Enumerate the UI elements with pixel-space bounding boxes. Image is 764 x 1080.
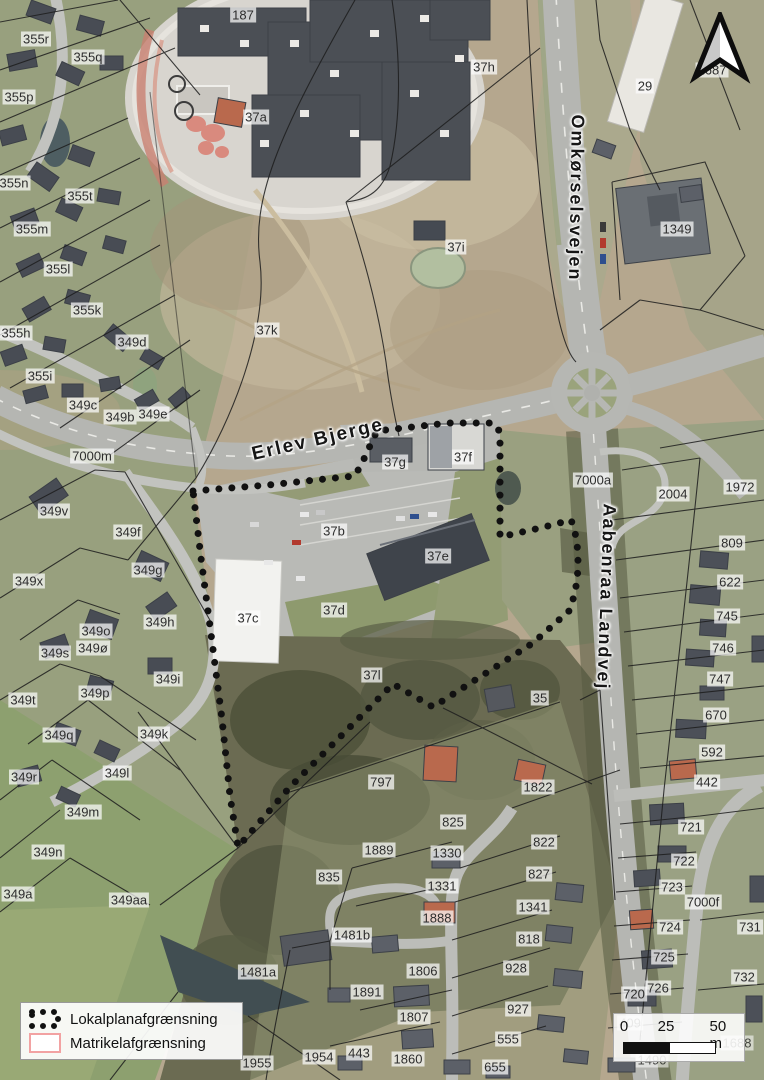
parcel-label: 443 xyxy=(346,1046,372,1061)
parcel-label: 1891 xyxy=(351,985,384,1000)
parcel-label: 592 xyxy=(699,745,725,760)
parcel-label: 349k xyxy=(138,727,170,742)
parcel-label: 7000a xyxy=(573,473,613,488)
parcel-label: 355m xyxy=(14,222,51,237)
parcel-label: 655 xyxy=(482,1060,508,1075)
parcel-label: 355l xyxy=(44,262,73,277)
parcel-label: 349p xyxy=(79,686,112,701)
parcel-label: 349t xyxy=(8,693,37,708)
parcel-label: 725 xyxy=(651,950,677,965)
parcel-label: 721 xyxy=(678,820,704,835)
parcel-label: 1806 xyxy=(407,964,440,979)
parcel-label: 349s xyxy=(39,646,71,661)
parcel-label: 355p xyxy=(3,90,36,105)
parcel-label: 1341 xyxy=(517,900,550,915)
parcel-label: 349h xyxy=(144,615,177,630)
parcel-label: 29 xyxy=(636,79,654,94)
parcel-label: 809 xyxy=(719,536,745,551)
parcel-label: 37d xyxy=(321,603,347,618)
parcel-label: 349l xyxy=(103,766,132,781)
parcel-label: 37g xyxy=(382,455,408,470)
parcel-label: 349aa xyxy=(109,893,149,908)
parcel-label: 349g xyxy=(132,563,165,578)
legend-item-lokalplan: Lokalplanafgrænsning xyxy=(27,1007,236,1031)
parcel-label: 349b xyxy=(104,410,137,425)
parcel-label: 37i xyxy=(445,240,466,255)
parcel-label: 7000f xyxy=(685,895,722,910)
map-canvas: 187355r355q355p37a37h291687355n355t355m1… xyxy=(0,0,764,1080)
scale-bar-white-segment xyxy=(670,1043,716,1053)
parcel-label: 1331 xyxy=(426,879,459,894)
parcel-label: 349d xyxy=(116,335,149,350)
dotted-boundary-icon xyxy=(27,1007,63,1031)
north-arrow-icon xyxy=(688,12,752,88)
parcel-label: 622 xyxy=(717,575,743,590)
parcel-label: 732 xyxy=(731,970,757,985)
parcel-label: 1349 xyxy=(661,222,694,237)
parcel-label: 7000m xyxy=(70,449,114,464)
parcel-label: 928 xyxy=(503,961,529,976)
parcel-label: 2004 xyxy=(657,487,690,502)
parcel-label: 720 xyxy=(621,987,647,1002)
parcel-label: 1888 xyxy=(421,911,454,926)
parcel-label: 1822 xyxy=(522,780,555,795)
parcel-label: 37h xyxy=(471,60,497,75)
scale-bar-black-segment xyxy=(624,1043,670,1053)
parcel-label: 670 xyxy=(703,708,729,723)
parcel-label: 349o xyxy=(80,624,113,639)
parcel-label: 731 xyxy=(737,920,763,935)
parcel-label: 723 xyxy=(659,880,685,895)
parcel-label: 835 xyxy=(316,870,342,885)
parcel-label: 349c xyxy=(67,398,99,413)
legend: Lokalplanafgrænsning Matrikelafgrænsning xyxy=(20,1002,243,1060)
parcel-label: 825 xyxy=(440,815,466,830)
parcel-label: 37l xyxy=(361,668,382,683)
parcel-label: 349f xyxy=(113,525,142,540)
parcel-label: 187 xyxy=(230,8,256,23)
parcel-label: 1954 xyxy=(303,1050,336,1065)
parcel-label: 355k xyxy=(71,303,103,318)
parcel-label: 747 xyxy=(707,672,733,687)
parcel-label: 37c xyxy=(236,611,261,626)
parcel-label: 722 xyxy=(671,854,697,869)
parcel-label: 355i xyxy=(26,369,55,384)
parcel-label: 1889 xyxy=(363,843,396,858)
scale-bar-graphic xyxy=(623,1042,716,1054)
legend-item-matrikel: Matrikelafgrænsning xyxy=(27,1031,236,1055)
parcel-label: 349e xyxy=(137,407,170,422)
parcel-label: 818 xyxy=(516,932,542,947)
parcel-label: 1481a xyxy=(238,965,278,980)
parcel-label: 355q xyxy=(72,50,105,65)
parcel-label: 37e xyxy=(425,549,451,564)
parcel-label: 349v xyxy=(38,504,70,519)
parcel-label: 442 xyxy=(694,775,720,790)
scale-tick-0: 0 xyxy=(620,1018,628,1035)
legend-label-matrikel: Matrikelafgrænsning xyxy=(70,1035,206,1052)
parcel-label: 746 xyxy=(710,641,736,656)
parcel-label: 37b xyxy=(321,524,347,539)
parcel-label: 349x xyxy=(13,574,45,589)
parcel-label: 726 xyxy=(645,981,671,996)
parcel-label: 349a xyxy=(2,887,35,902)
parcel-label: 37f xyxy=(452,450,474,465)
road-label: Omkørselsvejen xyxy=(564,114,588,281)
parcel-label: 745 xyxy=(714,609,740,624)
scale-bar-ticks: 0 25 50 m xyxy=(614,1018,744,1036)
parcel-label: 349n xyxy=(32,845,65,860)
parcel-label: 349r xyxy=(9,770,39,785)
aerial-scene xyxy=(0,0,764,1080)
parcel-label: 1955 xyxy=(241,1056,274,1071)
parcel-label: 927 xyxy=(505,1002,531,1017)
parcel-label: 1860 xyxy=(392,1052,425,1067)
parcel-label: 349i xyxy=(154,672,183,687)
parcel-label: 1807 xyxy=(398,1010,431,1025)
parcel-label: 37k xyxy=(255,323,280,338)
parcel-label: 1481b xyxy=(332,928,372,943)
parcel-label: 349m xyxy=(65,805,102,820)
parcel-label: 555 xyxy=(495,1032,521,1047)
parcel-label: 797 xyxy=(368,775,394,790)
parcel-label: 355h xyxy=(0,326,32,341)
scale-bar: 0 25 50 m xyxy=(613,1013,745,1062)
parcel-label: 349q xyxy=(43,728,76,743)
parcel-label: 724 xyxy=(657,920,683,935)
parcel-label: 355t xyxy=(65,189,94,204)
parcel-label: 1972 xyxy=(724,480,757,495)
outline-rect-icon xyxy=(27,1031,63,1055)
parcel-label: 349ø xyxy=(76,641,110,656)
parcel-label: 37a xyxy=(243,110,269,125)
parcel-label: 827 xyxy=(526,867,552,882)
legend-label-lokalplan: Lokalplanafgrænsning xyxy=(70,1011,218,1028)
scale-tick-25: 25 xyxy=(658,1018,675,1035)
parcel-label: 355n xyxy=(0,176,30,191)
parcel-label: 822 xyxy=(531,835,557,850)
parcel-label: 35 xyxy=(531,691,549,706)
parcel-label: 355r xyxy=(21,32,51,47)
parcel-label: 1330 xyxy=(431,846,464,861)
